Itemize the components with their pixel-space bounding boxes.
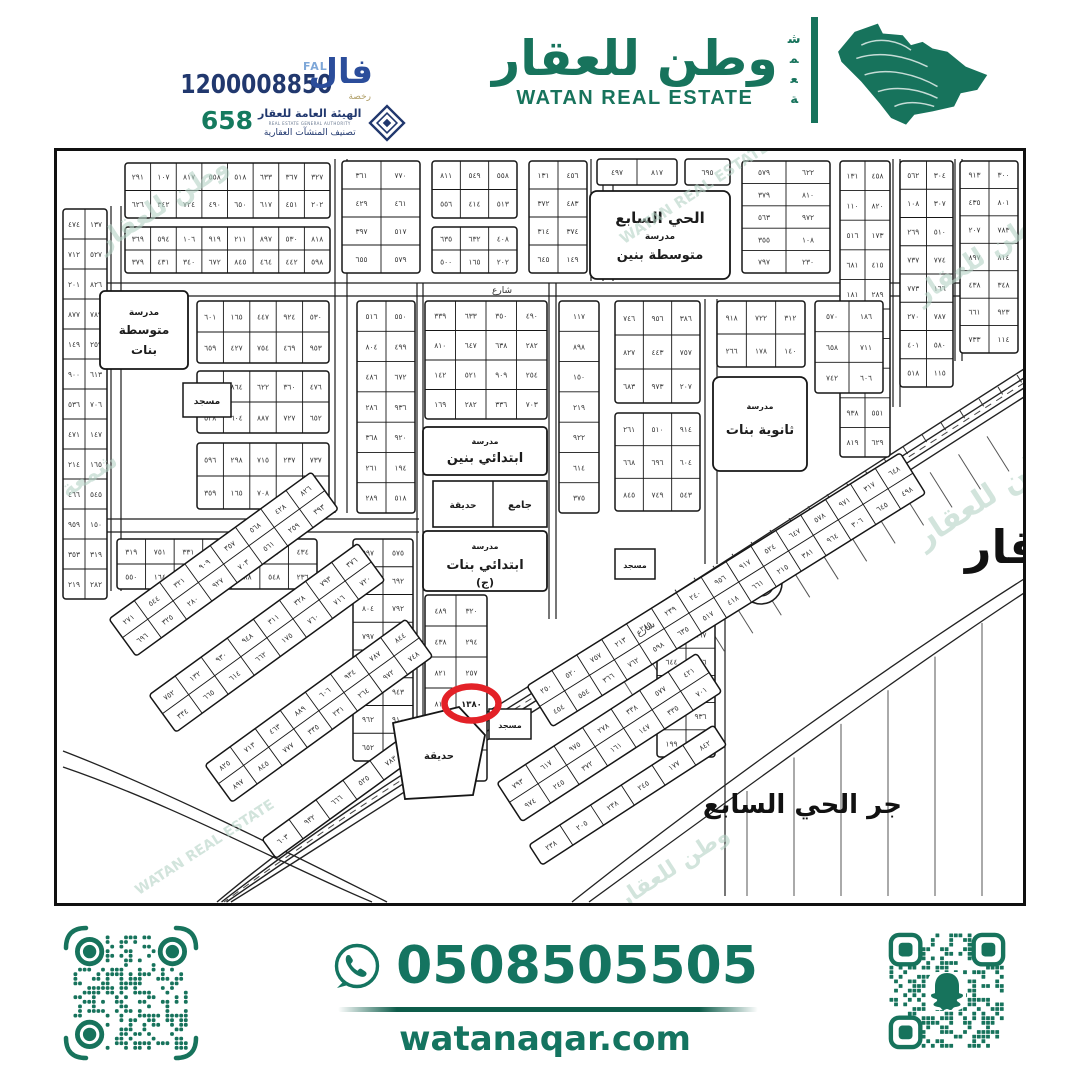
svg-text:٦٠٤: ٦٠٤ <box>680 458 692 467</box>
svg-text:متوسطة بنين: متوسطة بنين <box>617 248 704 263</box>
svg-text:٦٢٩: ٦٢٩ <box>871 438 883 447</box>
svg-text:٣٥٩: ٣٥٩ <box>204 488 216 497</box>
svg-text:٩٥٣: ٩٥٣ <box>310 343 322 352</box>
svg-text:٤٨٣: ٤٨٣ <box>566 199 578 208</box>
svg-text:١٩٤: ١٩٤ <box>394 463 406 472</box>
district-caption: جر الحي السابع <box>703 790 902 820</box>
svg-text:١٠٨: ١٠٨ <box>907 199 919 208</box>
svg-text:٦٣٢: ٦٣٢ <box>468 234 480 243</box>
svg-text:٢٩١: ٢٩١ <box>132 173 144 182</box>
svg-text:٤٣١: ٤٣١ <box>157 257 169 266</box>
svg-text:٦٢٢: ٦٢٢ <box>802 168 814 177</box>
mosque-label: مسجد <box>623 561 647 570</box>
svg-text:٧٤٩: ٧٤٩ <box>651 491 663 500</box>
svg-text:٢٦٩: ٢٦٩ <box>907 227 919 236</box>
svg-text:٦٨١: ٦٨١ <box>846 260 858 269</box>
svg-text:١١٠: ١١٠ <box>846 201 858 210</box>
svg-text:٤٧١: ٤٧١ <box>68 430 80 439</box>
svg-text:٢٣٠: ٢٣٠ <box>802 258 814 267</box>
mosque-label: مسجد <box>498 721 522 730</box>
svg-text:٣٠٧: ٣٠٧ <box>934 199 946 208</box>
svg-text:٢١٩: ٢١٩ <box>68 580 80 589</box>
svg-text:٨٢١: ٨٢١ <box>434 668 446 677</box>
svg-text:٣٧٩: ٣٧٩ <box>758 190 770 199</box>
svg-text:١٣١: ١٣١ <box>537 171 549 180</box>
svg-text:٥٦٢: ٥٦٢ <box>907 171 919 180</box>
svg-text:٤٤٧: ٤٤٧ <box>257 312 269 321</box>
svg-text:٣١٢: ٣١٢ <box>784 313 796 322</box>
svg-text:٦٠٦: ٦٠٦ <box>860 374 872 383</box>
svg-text:٤٩٠: ٤٩٠ <box>209 200 221 209</box>
svg-text:٦٣٥: ٦٣٥ <box>440 234 452 243</box>
qr-code-snapchat <box>876 920 1018 1062</box>
svg-text:٦٥٨: ٦٥٨ <box>826 343 838 352</box>
svg-text:٣٧٢: ٣٧٢ <box>537 199 549 208</box>
svg-text:١٨٦: ١٨٦ <box>860 312 872 321</box>
saudi-map-icon <box>827 12 995 128</box>
svg-text:٢٨٢: ٢٨٢ <box>90 580 102 589</box>
svg-text:٩١٤: ٩١٤ <box>680 425 692 434</box>
svg-text:٩٢٤: ٩٢٤ <box>283 312 295 321</box>
phone-number: 0508505505 <box>396 936 758 996</box>
svg-text:٨٨٧: ٨٨٧ <box>257 413 269 422</box>
svg-text:٢٦٦: ٢٦٦ <box>726 346 738 355</box>
authority-name-english: REAL ESTATE GENERAL AUTHORITY <box>258 121 361 126</box>
svg-text:٢٩٤: ٢٩٤ <box>465 637 477 646</box>
brand-name-arabic: وطن للعقار <box>492 30 778 89</box>
svg-text:٤٦١: ٤٦١ <box>394 199 406 208</box>
park-label: حديقة <box>424 751 454 762</box>
svg-text:٤٠١: ٤٠١ <box>907 340 919 349</box>
phone-row: 0508505505 <box>320 934 770 998</box>
svg-text:٨٦٤: ٨٦٤ <box>231 382 243 391</box>
authority-diamond-icon <box>366 102 408 144</box>
svg-text:٥٦٣: ٥٦٣ <box>758 213 770 222</box>
svg-text:٦٣٣: ٦٣٣ <box>260 173 272 182</box>
svg-text:٤٥٨: ٤٥٨ <box>871 172 883 181</box>
svg-text:٩٧٢: ٩٧٢ <box>802 213 814 222</box>
svg-text:٨١٧: ٨١٧ <box>651 168 663 177</box>
authority-tagline: تصنيف المنشآت العقارية <box>258 128 361 138</box>
svg-text:١٦٥: ١٦٥ <box>231 488 243 497</box>
svg-text:٢٠٢: ٢٠٢ <box>497 257 509 266</box>
svg-text:٢٥٤: ٢٥٤ <box>526 371 538 380</box>
svg-text:٥٤٩: ٥٤٩ <box>468 171 480 180</box>
svg-text:متوسطة: متوسطة <box>119 323 170 338</box>
svg-text:٦٣٣: ٦٣٣ <box>465 312 477 321</box>
svg-text:٣٦١: ٣٦١ <box>355 171 367 180</box>
svg-text:٦٧٢: ٦٧٢ <box>209 257 221 266</box>
svg-text:٤٣٥: ٤٣٥ <box>968 198 980 207</box>
highlighted-plot-number: ١٣٨٠ <box>461 700 482 710</box>
svg-text:٩٢٣: ٩٢٣ <box>997 308 1009 317</box>
svg-text:٧٥٤: ٧٥٤ <box>257 343 269 352</box>
svg-text:٦٥٢: ٦٥٢ <box>310 413 322 422</box>
svg-text:٤٦٤: ٤٦٤ <box>260 257 272 266</box>
svg-text:٤٢٧: ٤٢٧ <box>231 343 243 352</box>
svg-text:١٨١: ١٨١ <box>846 290 858 299</box>
svg-text:٢٦١: ٢٦١ <box>365 463 377 472</box>
svg-text:٢٧٠: ٢٧٠ <box>907 312 919 321</box>
svg-text:١٦٥: ١٦٥ <box>231 312 243 321</box>
svg-text:٩٣٦: ٩٣٦ <box>694 712 706 721</box>
svg-text:٦٥٠: ٦٥٠ <box>234 200 246 209</box>
svg-text:٢٨٢: ٢٨٢ <box>526 341 538 350</box>
svg-text:٥٠٠: ٥٠٠ <box>440 257 452 266</box>
svg-text:٢٠٢: ٢٠٢ <box>311 200 323 209</box>
svg-text:٥٧٩: ٥٧٩ <box>394 255 406 264</box>
svg-text:٦٩٦: ٦٩٦ <box>651 458 663 467</box>
svg-text:٩٤٣: ٩٤٣ <box>392 687 404 696</box>
svg-text:٨١٩: ٨١٩ <box>846 438 858 447</box>
svg-text:٢٠٧: ٢٠٧ <box>968 225 980 234</box>
svg-text:١١٤: ١١٤ <box>997 335 1009 344</box>
fal-arabic-label: فال <box>308 52 373 92</box>
svg-text:٣٣٩: ٣٣٩ <box>434 312 446 321</box>
svg-text:٨٩٨: ٨٩٨ <box>573 342 585 351</box>
svg-text:٦١٤: ٦١٤ <box>573 463 585 472</box>
svg-text:١٣١: ١٣١ <box>846 172 858 181</box>
svg-text:٣٦٨: ٣٦٨ <box>365 433 377 442</box>
svg-text:٤٩٠: ٤٩٠ <box>526 312 538 321</box>
svg-text:٥١٠: ٥١٠ <box>651 425 663 434</box>
website-url: watanaqar.com <box>320 1019 770 1059</box>
svg-text:٥١٠: ٥١٠ <box>934 227 946 236</box>
fal-sub-label: رخصة <box>348 92 371 102</box>
svg-text:٣٥٠: ٣٥٠ <box>495 312 507 321</box>
svg-text:٦٢٢: ٦٢٢ <box>257 382 269 391</box>
svg-text:٤٠٨: ٤٠٨ <box>497 234 509 243</box>
svg-text:ابتدائي بنين: ابتدائي بنين <box>447 451 523 466</box>
svg-text:٣٥٣: ٣٥٣ <box>68 550 80 559</box>
svg-text:٨٠٤: ٨٠٤ <box>362 604 374 613</box>
mosque-label: مسجد <box>194 397 220 407</box>
svg-text:٣١٤: ٣١٤ <box>537 227 549 236</box>
svg-text:٦١٧: ٦١٧ <box>260 200 272 209</box>
svg-text:٣٨٦: ٣٨٦ <box>680 314 692 323</box>
svg-text:٥٣٠: ٥٣٠ <box>286 234 298 243</box>
svg-text:٥١٦: ٥١٦ <box>846 231 858 240</box>
svg-text:٧٣٧: ٧٣٧ <box>310 455 322 464</box>
svg-text:٤٤٢: ٤٤٢ <box>286 257 298 266</box>
svg-text:٢٨٢: ٢٨٢ <box>465 400 477 409</box>
street-label: شارع <box>492 286 512 296</box>
svg-text:٢٣٧: ٢٣٧ <box>283 455 295 464</box>
svg-text:٣٤٨: ٣٤٨ <box>997 280 1009 289</box>
svg-text:٥٧٥: ٥٧٥ <box>392 549 404 558</box>
svg-text:٢٠١: ٢٠١ <box>68 280 80 289</box>
svg-text:٢٠٧: ٢٠٧ <box>680 382 692 391</box>
classification-number: 658 <box>158 106 253 135</box>
svg-text:ثانوية بنات: ثانوية بنات <box>726 423 794 438</box>
svg-text:٦٩٢: ٦٩٢ <box>392 576 404 585</box>
svg-text:٤٦٩: ٤٦٩ <box>283 343 295 352</box>
svg-text:٢٨٦: ٢٨٦ <box>365 403 377 412</box>
qr-code-website <box>60 922 202 1064</box>
svg-text:٨٤٥: ٨٤٥ <box>623 491 635 500</box>
svg-text:٢٥٧: ٢٥٧ <box>465 668 477 677</box>
footer-divider <box>338 1007 758 1012</box>
svg-text:١٠٦: ١٠٦ <box>183 234 195 243</box>
svg-text:٧٣٧: ٧٣٧ <box>907 256 919 265</box>
svg-text:٥٨٠: ٥٨٠ <box>934 340 946 349</box>
svg-text:٧١٢: ٧١٢ <box>68 250 80 259</box>
svg-text:٤١٤: ٤١٤ <box>468 200 480 209</box>
svg-text:٧١١: ٧١١ <box>860 343 872 352</box>
fal-license-number: 1200008850 <box>180 70 298 100</box>
grand-mosque-label: جامع <box>508 500 532 511</box>
svg-text:٣٧٩: ٣٧٩ <box>132 257 144 266</box>
svg-text:٥٧٠: ٥٧٠ <box>826 312 838 321</box>
svg-text:٧٤٢: ٧٤٢ <box>826 374 838 383</box>
svg-text:ابتدائي بنات: ابتدائي بنات <box>446 558 523 573</box>
svg-text:٨١٠: ٨١٠ <box>434 341 446 350</box>
authority-logo: الهيئة العامة للعقار REAL ESTATE GENERAL… <box>258 102 408 144</box>
svg-text:١١٥: ١١٥ <box>934 369 946 378</box>
svg-text:٧١٥: ٧١٥ <box>257 455 269 464</box>
svg-text:٣١٩: ٣١٩ <box>125 547 137 556</box>
svg-text:٣٠٠: ٣٠٠ <box>997 171 1009 180</box>
svg-text:٢١١: ٢١١ <box>234 234 246 243</box>
svg-text:٣٤٠: ٣٤٠ <box>183 257 195 266</box>
svg-text:٣٢٠: ٣٢٠ <box>465 606 477 615</box>
svg-text:٧٠٨: ٧٠٨ <box>257 488 269 497</box>
svg-text:٦٠٤: ٦٠٤ <box>231 413 243 422</box>
svg-text:١٧٣: ١٧٣ <box>871 231 883 240</box>
svg-text:٩٦٢: ٩٦٢ <box>362 715 374 724</box>
girls-secondary-label: مدرسة <box>747 402 774 411</box>
svg-text:٧٩٧: ٧٩٧ <box>758 258 770 267</box>
park-label: حديقة <box>450 501 477 511</box>
svg-text:٦٠١: ٦٠١ <box>204 312 216 321</box>
svg-text:٧٠٣: ٧٠٣ <box>526 400 538 409</box>
svg-text:٩٧٣: ٩٧٣ <box>651 382 663 391</box>
svg-text:٨٤٥: ٨٤٥ <box>234 257 246 266</box>
svg-text:٤٧٤: ٤٧٤ <box>68 220 80 229</box>
svg-text:١٤٧: ١٤٧ <box>90 430 102 439</box>
svg-text:٩٠٩: ٩٠٩ <box>495 371 507 380</box>
svg-text:٩٢٠: ٩٢٠ <box>394 433 406 442</box>
svg-text:٥٥٨: ٥٥٨ <box>497 171 509 180</box>
svg-text:٩٠٠: ٩٠٠ <box>68 370 80 379</box>
svg-text:٥٤٨: ٥٤٨ <box>268 572 280 581</box>
svg-text:٦٥٩: ٦٥٩ <box>204 343 216 352</box>
svg-text:٧٥١: ٧٥١ <box>154 547 166 556</box>
svg-text:٧٣٣: ٧٣٣ <box>968 335 980 344</box>
svg-text:٧٠٦: ٧٠٦ <box>90 400 102 409</box>
svg-text:٦٤٤: ٦٤٤ <box>665 658 677 667</box>
svg-text:٣٣٦: ٣٣٦ <box>495 400 507 409</box>
svg-text:٨٠١: ٨٠١ <box>997 198 1009 207</box>
svg-text:٦١٣: ٦١٣ <box>90 370 102 379</box>
brand-name-english: WATAN REAL ESTATE <box>516 87 753 110</box>
svg-text:٩١٨: ٩١٨ <box>726 313 738 322</box>
svg-text:٨٢٦: ٨٢٦ <box>90 280 102 289</box>
svg-text:٨٠٤: ٨٠٤ <box>365 342 377 351</box>
svg-text:١٥٠: ١٥٠ <box>90 520 102 529</box>
svg-text:٥١٣: ٥١٣ <box>497 200 509 209</box>
svg-text:٩٥٩: ٩٥٩ <box>68 520 80 529</box>
svg-text:٣٥٥: ٣٥٥ <box>758 235 770 244</box>
svg-text:وطن للعقار: وطن للعقار <box>612 822 734 903</box>
boys-elementary-label: مدرسة <box>472 437 499 446</box>
svg-text:٥٩٦: ٥٩٦ <box>204 455 216 464</box>
svg-text:٥٥٠: ٥٥٠ <box>125 572 137 581</box>
svg-text:٩٣٦: ٩٣٦ <box>394 403 406 412</box>
svg-text:٤٥٦: ٤٥٦ <box>566 171 578 180</box>
svg-text:١٧٨: ١٧٨ <box>755 346 767 355</box>
svg-text:٩٥٦: ٩٥٦ <box>651 314 663 323</box>
girls-elementary-label: مدرسة <box>472 542 499 551</box>
svg-text:٨٢٧: ٨٢٧ <box>623 348 635 357</box>
svg-text:٥٣٠: ٥٣٠ <box>310 312 322 321</box>
svg-text:٨٩٧: ٨٩٧ <box>260 234 272 243</box>
svg-text:٣٧٥: ٣٧٥ <box>573 494 585 503</box>
svg-text:٥٢٧: ٥٢٧ <box>90 250 102 259</box>
svg-text:٤٤٣: ٤٤٣ <box>651 348 663 357</box>
svg-text:١٩٩: ١٩٩ <box>665 739 677 748</box>
svg-text:٦٣٨: ٦٣٨ <box>495 341 507 350</box>
svg-text:٩٢٢: ٩٢٢ <box>573 433 585 442</box>
svg-text:١٦٩: ١٦٩ <box>434 400 446 409</box>
svg-text:٦٧٢: ٦٧٢ <box>394 373 406 382</box>
right-edge-caption: قار <box>963 520 1023 574</box>
svg-text:١٤٢: ١٤٢ <box>434 371 446 380</box>
authority-name-arabic: الهيئة العامة للعقار <box>258 108 361 120</box>
svg-text:٣١٩: ٣١٩ <box>90 550 102 559</box>
svg-text:٧٧٠: ٧٧٠ <box>394 171 406 180</box>
svg-text:١١٧: ١١٧ <box>573 312 585 321</box>
svg-text:٤٨٩: ٤٨٩ <box>434 606 446 615</box>
real-estate-flyer: 1200008850 658 FAL فال رخصة الهيئة العام… <box>0 0 1080 1080</box>
svg-text:٣٩٧: ٣٩٧ <box>355 227 367 236</box>
svg-text:٨٧٧: ٨٧٧ <box>68 310 80 319</box>
svg-text:٤٧٦: ٤٧٦ <box>310 382 322 391</box>
svg-text:٥٧٩: ٥٧٩ <box>758 168 770 177</box>
svg-text:٧٢٧: ٧٢٧ <box>283 413 295 422</box>
svg-text:٥١٧: ٥١٧ <box>394 227 406 236</box>
svg-text:٧٩٢: ٧٩٢ <box>392 604 404 613</box>
svg-text:٥١٨: ٥١٨ <box>394 494 406 503</box>
svg-text:٥٢١: ٥٢١ <box>465 371 477 380</box>
svg-text:٦٥٥: ٦٥٥ <box>355 255 367 264</box>
svg-text:٨٢٠: ٨٢٠ <box>871 201 883 210</box>
svg-text:٥١٦: ٥١٦ <box>365 312 377 321</box>
svg-text:٨١٠: ٨١٠ <box>802 190 814 199</box>
svg-text:٤٥١: ٤٥١ <box>286 200 298 209</box>
svg-text:٤٩٧: ٤٩٧ <box>611 168 623 177</box>
svg-text:٦٤٥: ٦٤٥ <box>537 255 549 264</box>
svg-text:٣٠٤: ٣٠٤ <box>934 171 946 180</box>
svg-text:(ج): (ج) <box>476 576 494 590</box>
svg-text:٦٨٣: ٦٨٣ <box>623 382 635 391</box>
svg-text:٤٨٦: ٤٨٦ <box>365 373 377 382</box>
svg-text:١٤٩: ١٤٩ <box>566 255 578 264</box>
svg-text:١٠٧: ١٠٧ <box>157 173 169 182</box>
svg-text:٣٣١: ٣٣١ <box>182 547 194 556</box>
svg-text:٩٣٨: ٩٣٨ <box>846 408 858 417</box>
brand-side-word: شمعة <box>787 30 802 111</box>
svg-text:٤٣٨: ٤٣٨ <box>434 637 446 646</box>
svg-text:٧٥٧: ٧٥٧ <box>680 348 692 357</box>
svg-text:١٤٠: ١٤٠ <box>784 346 796 355</box>
svg-text:بنات: بنات <box>131 343 157 357</box>
svg-text:٢٦١: ٢٦١ <box>623 425 635 434</box>
brand-logo: وطن للعقار WATAN REAL ESTATE شمعة <box>492 12 995 128</box>
svg-text:٤٩٩: ٤٩٩ <box>394 342 406 351</box>
svg-text:٦٦٨: ٦٦٨ <box>623 458 635 467</box>
brand-divider-bar <box>811 17 818 123</box>
svg-text:٥٥٠: ٥٥٠ <box>394 312 406 321</box>
svg-text:٤٣٤: ٤٣٤ <box>297 547 309 556</box>
svg-text:١٥٠: ١٥٠ <box>573 373 585 382</box>
svg-text:مدرسة: مدرسة <box>645 232 675 242</box>
svg-text:٣٧٤: ٣٧٤ <box>566 227 578 236</box>
svg-text:٥٥١: ٥٥١ <box>871 408 883 417</box>
svg-text:٦٦١: ٦٦١ <box>968 308 980 317</box>
svg-text:٥٣٦: ٥٣٦ <box>68 400 80 409</box>
svg-text:٦٤٧: ٦٤٧ <box>465 341 477 350</box>
svg-text:٨١١: ٨١١ <box>440 171 452 180</box>
svg-text:٩١٣: ٩١٣ <box>968 171 980 180</box>
svg-text:٥٤٥: ٥٤٥ <box>90 490 102 499</box>
svg-text:٤١٥: ٤١٥ <box>871 260 883 269</box>
svg-text:٣٦٠: ٣٦٠ <box>283 382 295 391</box>
svg-text:٥١٨: ٥١٨ <box>234 173 246 182</box>
svg-text:٤٣٨: ٤٣٨ <box>968 280 980 289</box>
svg-text:٥١٨: ٥١٨ <box>907 369 919 378</box>
svg-text:٦٥٢: ٦٥٢ <box>362 743 374 752</box>
svg-text:٢٨٩: ٢٨٩ <box>871 290 883 299</box>
svg-text:٥٤٣: ٥٤٣ <box>680 491 692 500</box>
svg-text:١٤٩: ١٤٩ <box>68 340 80 349</box>
svg-text:٧٢٢: ٧٢٢ <box>755 313 767 322</box>
svg-text:٨١٨: ٨١٨ <box>311 234 323 243</box>
svg-text:٥٥٦: ٥٥٦ <box>440 200 452 209</box>
svg-text:٣٢٧: ٣٢٧ <box>311 173 323 182</box>
svg-text:١٠٨: ١٠٨ <box>802 235 814 244</box>
svg-text:٣٦٧: ٣٦٧ <box>286 173 298 182</box>
whatsapp-icon <box>332 941 382 991</box>
svg-text:٤٢٩: ٤٢٩ <box>355 199 367 208</box>
svg-text:٥٩٤: ٥٩٤ <box>157 234 169 243</box>
girls-intermediate-label: مدرسة <box>129 308 159 318</box>
svg-text:٥٩٨: ٥٩٨ <box>311 257 323 266</box>
cadastral-map: ٤٧٤١٣٧٧١٢٥٢٧٢٠١٨٢٦٨٧٧٧٨٩١٤٩٢٥٩٩٠٠٦١٣٥٣٦٧… <box>54 148 1026 906</box>
svg-text:٧٨٧: ٧٨٧ <box>934 312 946 321</box>
svg-text:٢١٩: ٢١٩ <box>573 403 585 412</box>
svg-text:٧٩٧: ٧٩٧ <box>362 632 374 641</box>
svg-text:٢٨٩: ٢٨٩ <box>365 494 377 503</box>
svg-text:٧٤٦: ٧٤٦ <box>623 314 635 323</box>
svg-text:١٦٥: ١٦٥ <box>468 257 480 266</box>
svg-text:٢٩٨: ٢٩٨ <box>231 455 243 464</box>
svg-text:٩١٩: ٩١٩ <box>209 234 221 243</box>
